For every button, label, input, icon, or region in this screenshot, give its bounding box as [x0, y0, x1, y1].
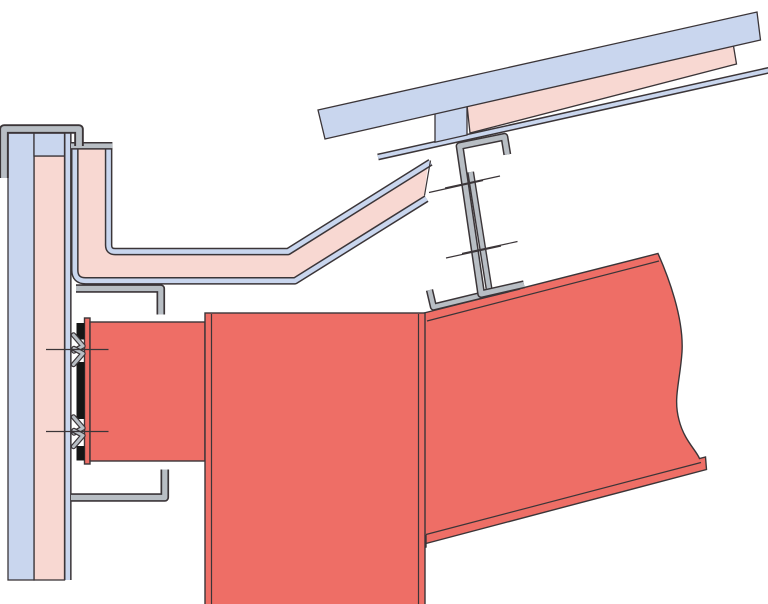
purlin-group: [429, 137, 524, 307]
gasket-segment-middle: [77, 362, 85, 419]
wall-top-spacer-block: [34, 133, 65, 156]
wall-outer-sheet: [8, 133, 34, 580]
soffit-insulation: [79, 148, 429, 284]
beam-stub: [90, 322, 205, 461]
bottom-support-bracket: [71, 470, 165, 498]
zed-purlin: [460, 137, 524, 294]
eaves-detail-drawing: [0, 0, 768, 604]
soffit-skins: [71, 146, 431, 315]
detail-drawing-canvas: [0, 0, 768, 604]
steel-column-group: [85, 313, 426, 604]
wall-assembly: [8, 133, 68, 580]
soffit-panel: [79, 148, 429, 284]
wall-insulation: [34, 156, 65, 580]
steel-column: [205, 313, 425, 604]
gasket-segment-bottom: [77, 446, 85, 461]
end-plate: [85, 318, 91, 464]
roof-assembly: [318, 12, 768, 157]
